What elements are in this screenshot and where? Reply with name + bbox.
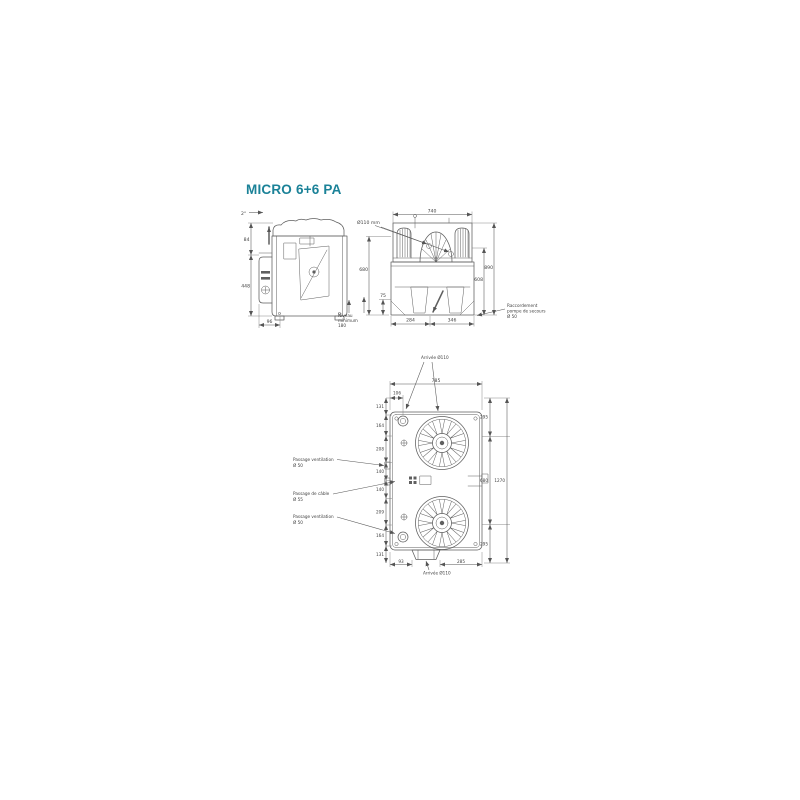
arrivee-bottom-label: Arrivée Ø110 xyxy=(423,571,451,576)
fan-wheel-bottom xyxy=(416,497,469,550)
left-chain-dim-3: 140 xyxy=(376,469,384,474)
left-chain-dim-0: 131 xyxy=(376,404,384,409)
cable-label-line-2: Ø 55 xyxy=(293,497,303,502)
front-view-dimensions: 740 Ø110 mm 680 75 608 890 284 34 xyxy=(357,209,546,327)
left-chain-dim-5: 209 xyxy=(376,510,384,515)
left-chain-dim-1: 164 xyxy=(376,423,384,428)
dim-bottom-small-label: 93 xyxy=(398,559,404,564)
vent-bottom-label-line-2: Ø 50 xyxy=(293,520,303,525)
right-chain-dim-0: 295 xyxy=(480,415,488,420)
dim-right-inner-label: 608 xyxy=(474,277,483,283)
side-view-dimensions: 2° 84 448 96 Niveau minimum 180 xyxy=(241,211,364,328)
plan-view-outline xyxy=(385,412,488,560)
product-dimension-page: MICRO 6+6 PA xyxy=(0,0,800,800)
dim-width-label: 740 xyxy=(428,209,437,215)
plan-view-drawing: Arrivée Ø110 785 106 xyxy=(285,348,530,583)
level-note-line-3: 180 xyxy=(338,323,346,328)
left-dimension-chain xyxy=(386,398,392,563)
slope-label: 2° xyxy=(241,211,246,217)
front-view-drawing: 740 Ø110 mm 680 75 608 890 284 34 xyxy=(355,203,555,348)
plan-view-dimensions: Arrivée Ø110 785 106 xyxy=(293,355,510,576)
dim-width-label: 785 xyxy=(432,378,441,384)
left-chain-dim-4: 140 xyxy=(376,487,384,492)
connection-note-line-1: Raccordement xyxy=(507,303,538,308)
dim-bottom-right-label: 346 xyxy=(448,318,457,324)
dim-width-small-label: 106 xyxy=(393,391,401,396)
connection-note-line-3: Ø 50 xyxy=(507,314,517,319)
right-chain-dim-1: 680 xyxy=(480,478,488,483)
dim-bottom-label: 285 xyxy=(457,559,465,564)
dim-right-outer-label: 890 xyxy=(484,265,493,271)
dim-total-label: 1270 xyxy=(494,478,505,483)
left-chain-dim-2: 208 xyxy=(376,447,384,452)
vent-bottom-label-line-1: Passage ventilation xyxy=(293,514,334,519)
connection-note-line-2: pompe de secours xyxy=(507,309,546,314)
left-chain-dim-6: 164 xyxy=(376,533,384,538)
dim-bottom-left-label: 284 xyxy=(406,318,415,324)
front-view-outline xyxy=(391,215,474,316)
dim-left-height-label: 680 xyxy=(359,267,368,273)
dim-upper-label: 84 xyxy=(244,237,250,243)
arrivee-top-label: Arrivée Ø110 xyxy=(421,355,449,360)
left-chain-dim-7: 131 xyxy=(376,552,384,557)
right-chain-dim-2: 295 xyxy=(480,542,488,547)
fan-wheel-top xyxy=(416,417,469,470)
inlet-diameter-label: Ø110 mm xyxy=(357,219,380,226)
cable-label-line-1: Passage de câble xyxy=(293,491,330,496)
dim-left-small-label: 75 xyxy=(380,293,386,299)
dim-height-label: 448 xyxy=(241,284,250,290)
page-title: MICRO 6+6 PA xyxy=(246,182,342,197)
vent-top-label-line-1: Passage ventilation xyxy=(293,457,334,462)
side-view-outline xyxy=(259,219,347,321)
dim-bottom-label: 96 xyxy=(267,319,273,325)
vent-top-label-line-2: Ø 50 xyxy=(293,463,303,468)
